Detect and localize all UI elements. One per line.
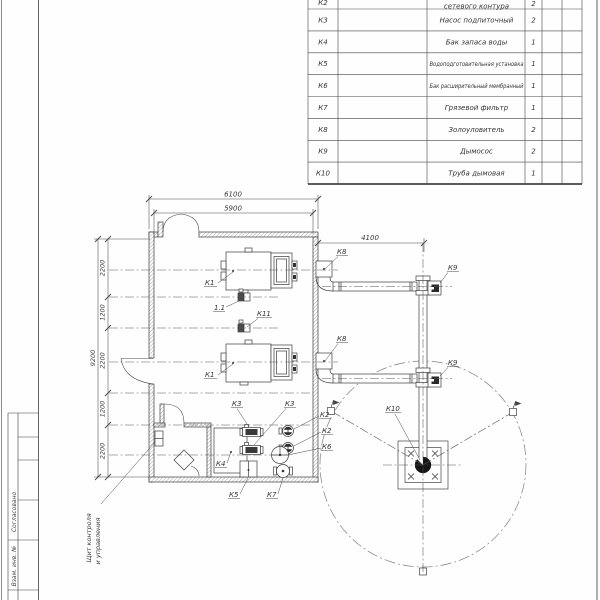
label-valve-k11: К11 xyxy=(257,310,271,318)
spec-table: К2 сетевого контура 2 К3 Насос подпиточн… xyxy=(308,0,582,184)
dim-left-total: 9200 xyxy=(89,350,97,367)
label-smoke-exhauster-2: К9 xyxy=(448,359,458,367)
drawing-canvas: Согласовано Взам. инв. № К2 сетевого кон… xyxy=(0,0,600,600)
label-pump-k3-2: К3 xyxy=(285,400,294,408)
row-pos: К10 xyxy=(316,170,330,178)
label-ash-catcher-1: К8 xyxy=(337,248,347,256)
row-pos: К9 xyxy=(318,148,328,156)
row-pos: К6 xyxy=(318,82,328,90)
dim-top-outer: 6100 xyxy=(224,191,242,199)
label-chimney: К10 xyxy=(386,405,400,413)
label-pump-k2-2: К2 xyxy=(322,427,332,435)
label-ash-catcher-2: К8 xyxy=(337,335,347,343)
label-pump-k3-1: К3 xyxy=(232,400,241,408)
note-line-1: Щит контроля xyxy=(85,513,93,562)
row-qty: 2 xyxy=(531,17,536,25)
boiler-1-symbol xyxy=(221,248,297,293)
label-smoke-exhauster-1: К9 xyxy=(448,264,458,272)
note-line-2: и управления xyxy=(94,517,102,564)
row-name: Золоуловитель xyxy=(448,126,504,134)
dim-top-inner: 5900 xyxy=(224,205,242,213)
unit-k5-symbol xyxy=(240,461,257,477)
row-qty: 1 xyxy=(531,104,535,112)
stamp-agreed-label: Согласовано xyxy=(11,492,18,533)
row-qty: 2 xyxy=(531,0,536,8)
row-name: Дымосос xyxy=(459,148,493,156)
double-door-leaf xyxy=(163,214,181,232)
label-valve-11: 1.1 xyxy=(214,304,225,312)
label-filter-k7: К7 xyxy=(267,491,277,499)
control-panel-symbol xyxy=(155,431,163,446)
side-door-arc xyxy=(121,359,153,385)
floor-drain-symbol xyxy=(174,450,199,476)
row-qty: 2 xyxy=(531,148,536,156)
page-frame xyxy=(2,0,598,600)
row-name: Труба дымовая xyxy=(448,170,504,178)
label-boiler-1: К1 xyxy=(205,279,214,287)
table-row: К10 Труба дымовая 1 xyxy=(316,170,536,178)
anchor-upper-right xyxy=(510,409,517,416)
row-name: Бак расширительный мембранный xyxy=(430,82,524,90)
row-pos: К8 xyxy=(318,126,328,134)
double-door-leaf xyxy=(181,214,199,232)
label-boiler-2: К1 xyxy=(205,371,214,379)
partition-door-arc xyxy=(164,404,184,423)
row-name: сетевого контура xyxy=(444,3,509,11)
control-panel-note: Щит контроля и управления xyxy=(85,442,155,564)
label-tank-k6: К6 xyxy=(322,443,332,451)
row-name: Водоподготовительная установка xyxy=(430,61,524,68)
doors xyxy=(121,214,199,423)
dim-seg-1: 2200 xyxy=(99,260,107,277)
pump-k3-symbols xyxy=(240,425,263,455)
dim-seg-4: 1200 xyxy=(99,401,107,418)
boiler-2-symbol xyxy=(221,340,297,385)
row-qty: 2 xyxy=(531,126,536,134)
row-pos: К5 xyxy=(318,60,328,68)
dim-flue: 4100 xyxy=(361,234,379,242)
row-pos: К4 xyxy=(318,38,327,46)
row-qty: 1 xyxy=(531,38,535,46)
dim-seg-5: 2200 xyxy=(99,443,107,460)
row-name: Насос подпиточный xyxy=(440,17,514,25)
label-unit-k5: К5 xyxy=(229,491,239,499)
filter-k7-symbol xyxy=(274,465,293,478)
row-name: Бак запаса воды xyxy=(446,38,508,46)
row-name: Грязевой фильтр xyxy=(445,104,509,112)
row-qty: 1 xyxy=(531,170,535,178)
dim-seg-2: 1200 xyxy=(99,304,107,321)
drawing-sheet: Согласовано Взам. инв. № К2 сетевого кон… xyxy=(0,0,600,600)
row-pos: К7 xyxy=(318,104,328,112)
dim-seg-3: 2200 xyxy=(99,352,107,369)
row-pos: К2 xyxy=(318,0,328,7)
row-pos: К3 xyxy=(318,17,327,25)
row-qty: 1 xyxy=(531,60,535,68)
stamp-vzam-label: Взам. инв. № xyxy=(11,546,18,587)
label-tank-k4: К4 xyxy=(216,460,225,468)
row-qty: 1 xyxy=(531,82,535,90)
label-pump-k2-1: К2 xyxy=(320,411,330,419)
